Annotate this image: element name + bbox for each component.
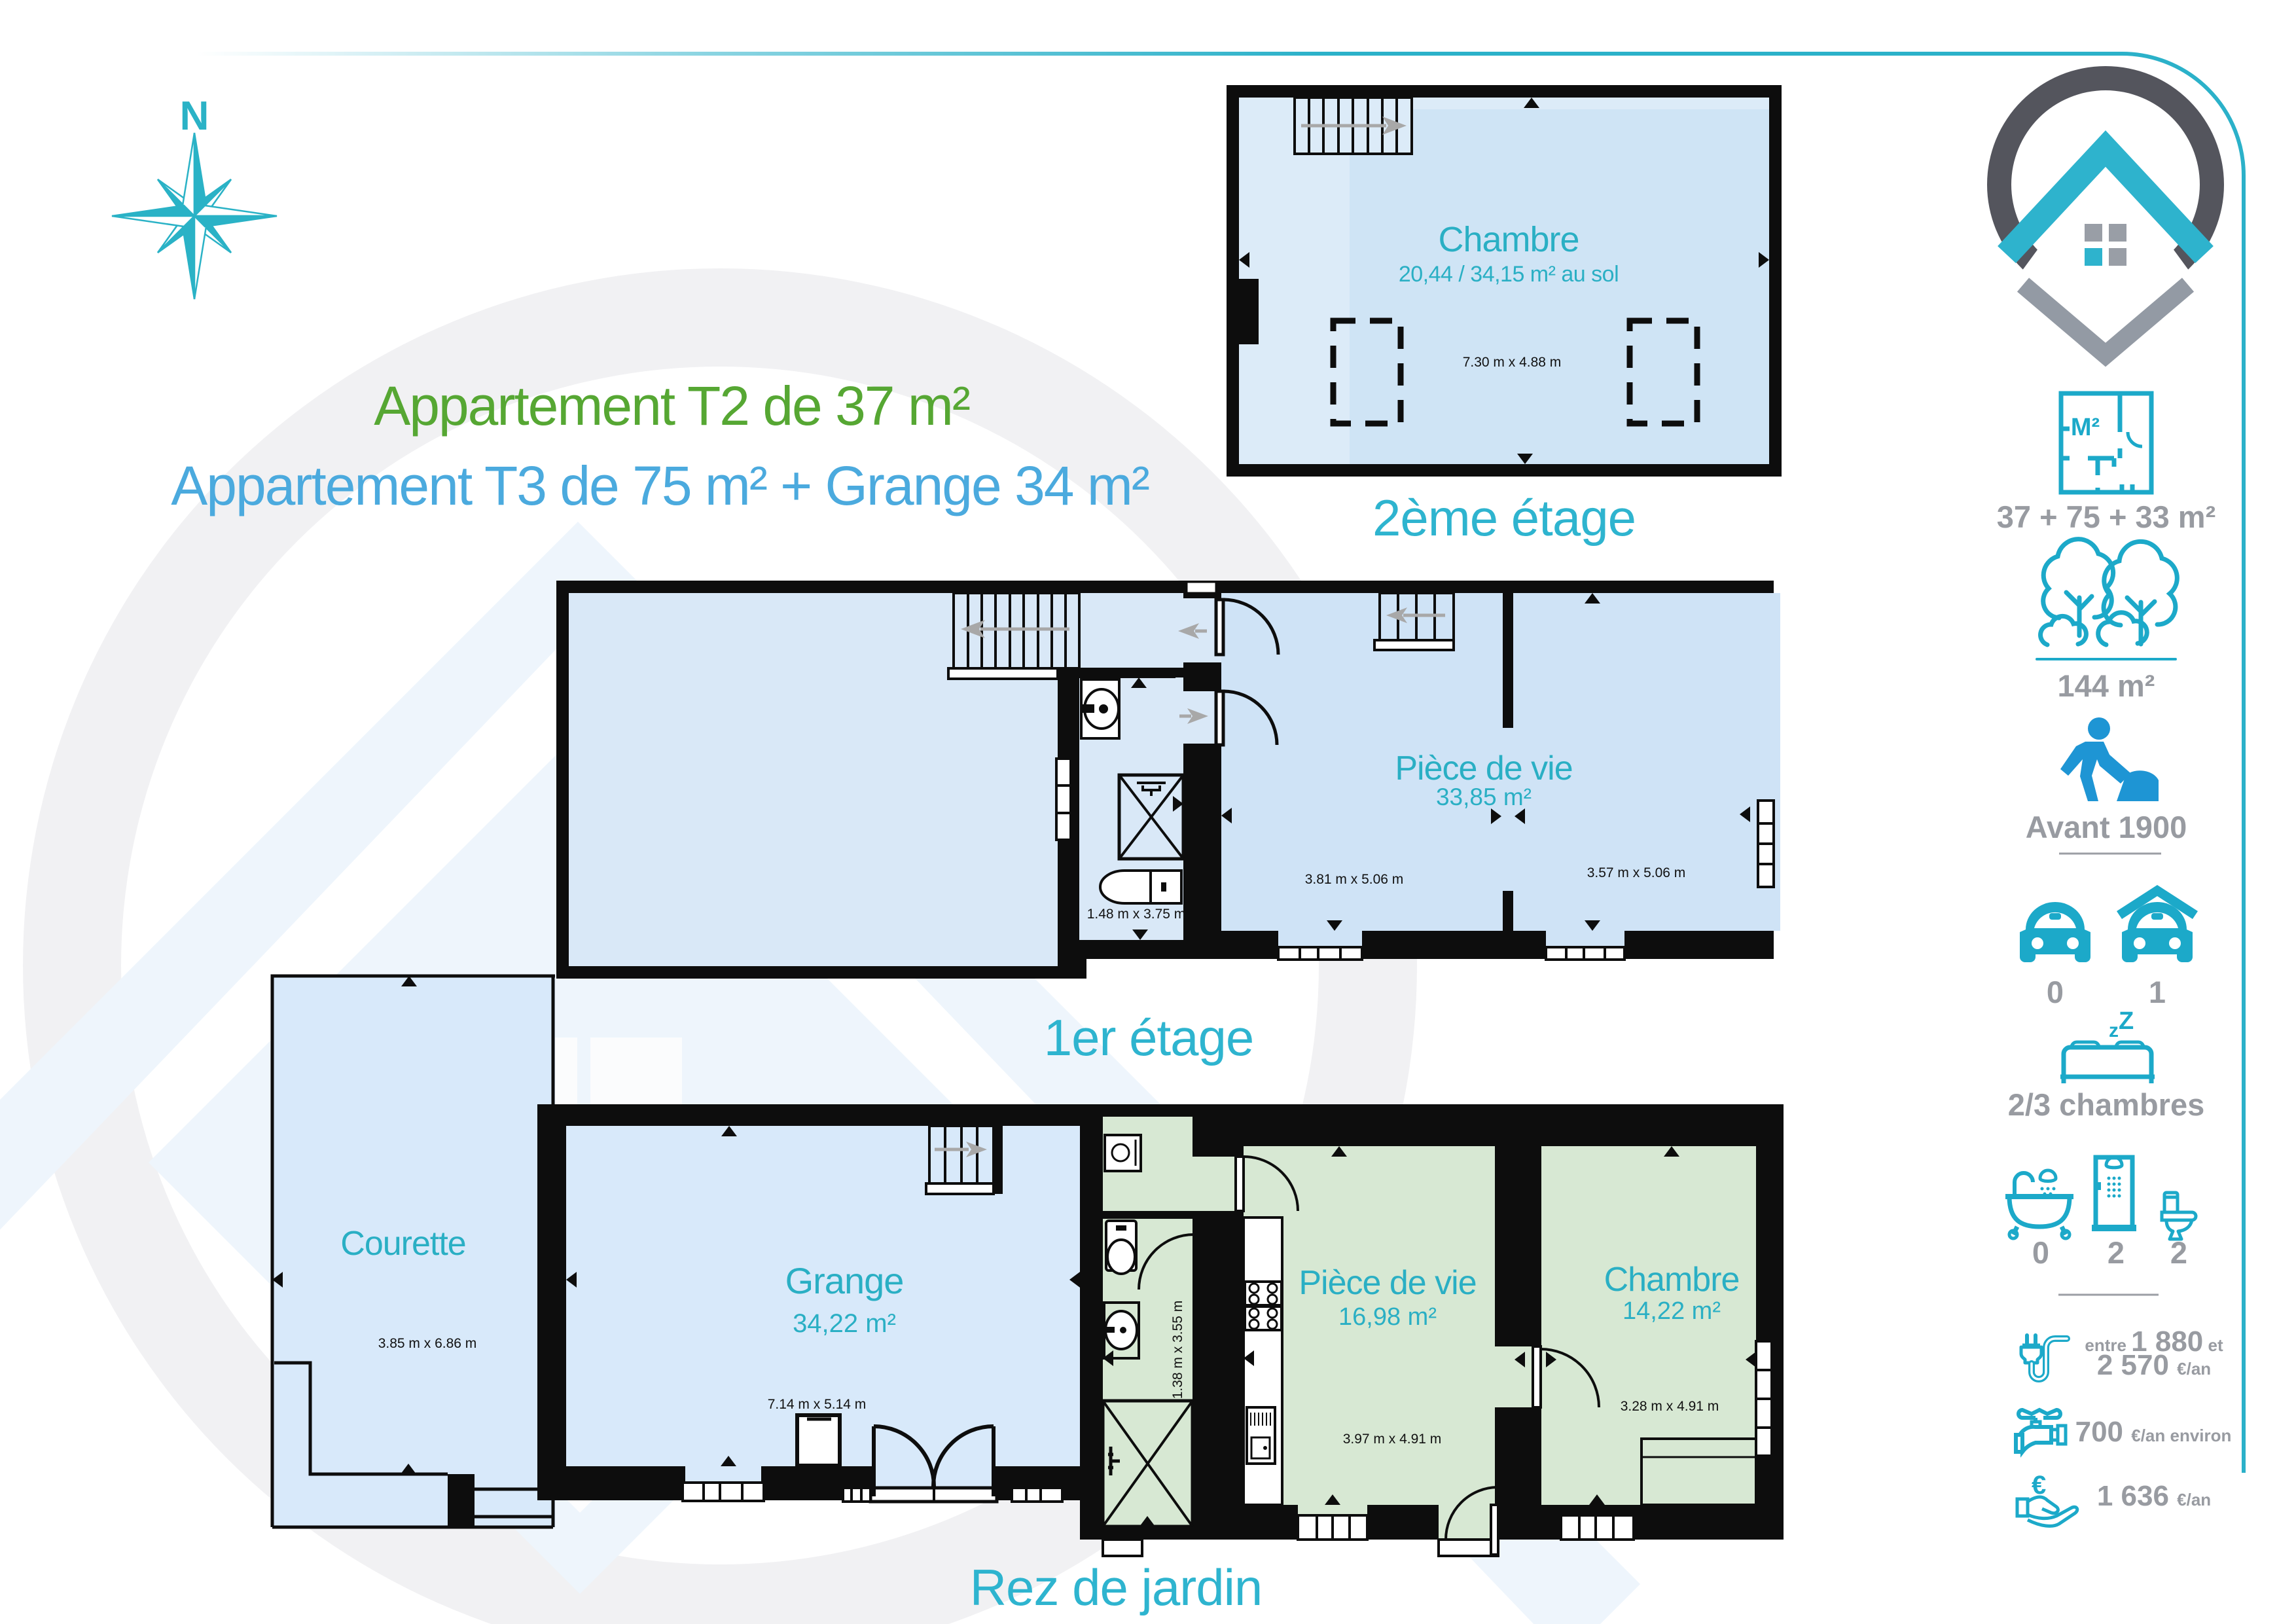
svg-text:Z: Z: [2119, 1007, 2134, 1035]
svg-text:Chambre: Chambre: [1438, 220, 1579, 259]
svg-text:7.30 m x 4.88 m: 7.30 m x 4.88 m: [1463, 355, 1562, 370]
svg-text:1.48 m x 3.75 m: 1.48 m x 3.75 m: [1087, 907, 1186, 922]
svg-text:1: 1: [2149, 975, 2166, 1009]
svg-text:Chambre: Chambre: [1604, 1261, 1740, 1299]
svg-text:Courette: Courette: [340, 1225, 465, 1263]
svg-text:€: €: [2032, 1471, 2046, 1500]
svg-text:2: 2: [2108, 1235, 2125, 1270]
svg-text:3.85 m x 6.86 m: 3.85 m x 6.86 m: [378, 1336, 477, 1351]
svg-text:37 + 75 + 33 m²: 37 + 75 + 33 m²: [1997, 499, 2215, 534]
svg-text:2: 2: [2170, 1235, 2187, 1270]
svg-text:14,22 m²: 14,22 m²: [1623, 1297, 1721, 1325]
svg-text:2/3 chambres: 2/3 chambres: [2008, 1087, 2204, 1122]
svg-text:1er étage: 1er étage: [1044, 1009, 1254, 1066]
svg-text:3.57 m x 5.06 m: 3.57 m x 5.06 m: [1587, 865, 1686, 880]
svg-text:33,85 m²: 33,85 m²: [1436, 784, 1532, 810]
svg-text:0: 0: [2047, 975, 2064, 1009]
svg-text:Appartement T3 de 75 m² + Gran: Appartement T3 de 75 m² + Grange 34 m²: [171, 455, 1149, 516]
svg-text:3.97 m x 4.91 m: 3.97 m x 4.91 m: [1343, 1432, 1442, 1447]
svg-text:z: z: [2109, 1020, 2119, 1041]
svg-text:1.38 m x 3.55 m: 1.38 m x 3.55 m: [1170, 1301, 1185, 1399]
svg-text:16,98 m²: 16,98 m²: [1338, 1303, 1437, 1331]
svg-text:Avant 1900: Avant 1900: [2026, 810, 2187, 844]
svg-text:2ème étage: 2ème étage: [1372, 489, 1636, 547]
svg-text:N: N: [180, 94, 209, 139]
svg-text:20,44 / 34,15 m² au sol: 20,44 / 34,15 m² au sol: [1399, 262, 1619, 287]
svg-text:Appartement T2 de 37 m²: Appartement T2 de 37 m²: [374, 375, 970, 437]
svg-text:3.81 m x 5.06 m: 3.81 m x 5.06 m: [1305, 872, 1404, 887]
svg-text:Rez de jardin: Rez de jardin: [970, 1559, 1263, 1616]
svg-text:0: 0: [2032, 1235, 2049, 1270]
svg-text:Pièce de vie: Pièce de vie: [1395, 749, 1572, 787]
svg-text:M²: M²: [2071, 414, 2100, 441]
svg-text:3.28 m x 4.91 m: 3.28 m x 4.91 m: [1621, 1399, 1719, 1414]
svg-text:Grange: Grange: [785, 1260, 904, 1301]
svg-text:144 m²: 144 m²: [2058, 668, 2155, 703]
svg-text:7.14 m x 5.14 m: 7.14 m x 5.14 m: [768, 1397, 867, 1412]
svg-text:34,22 m²: 34,22 m²: [793, 1309, 896, 1338]
svg-text:Pièce de vie: Pièce de vie: [1299, 1264, 1476, 1302]
